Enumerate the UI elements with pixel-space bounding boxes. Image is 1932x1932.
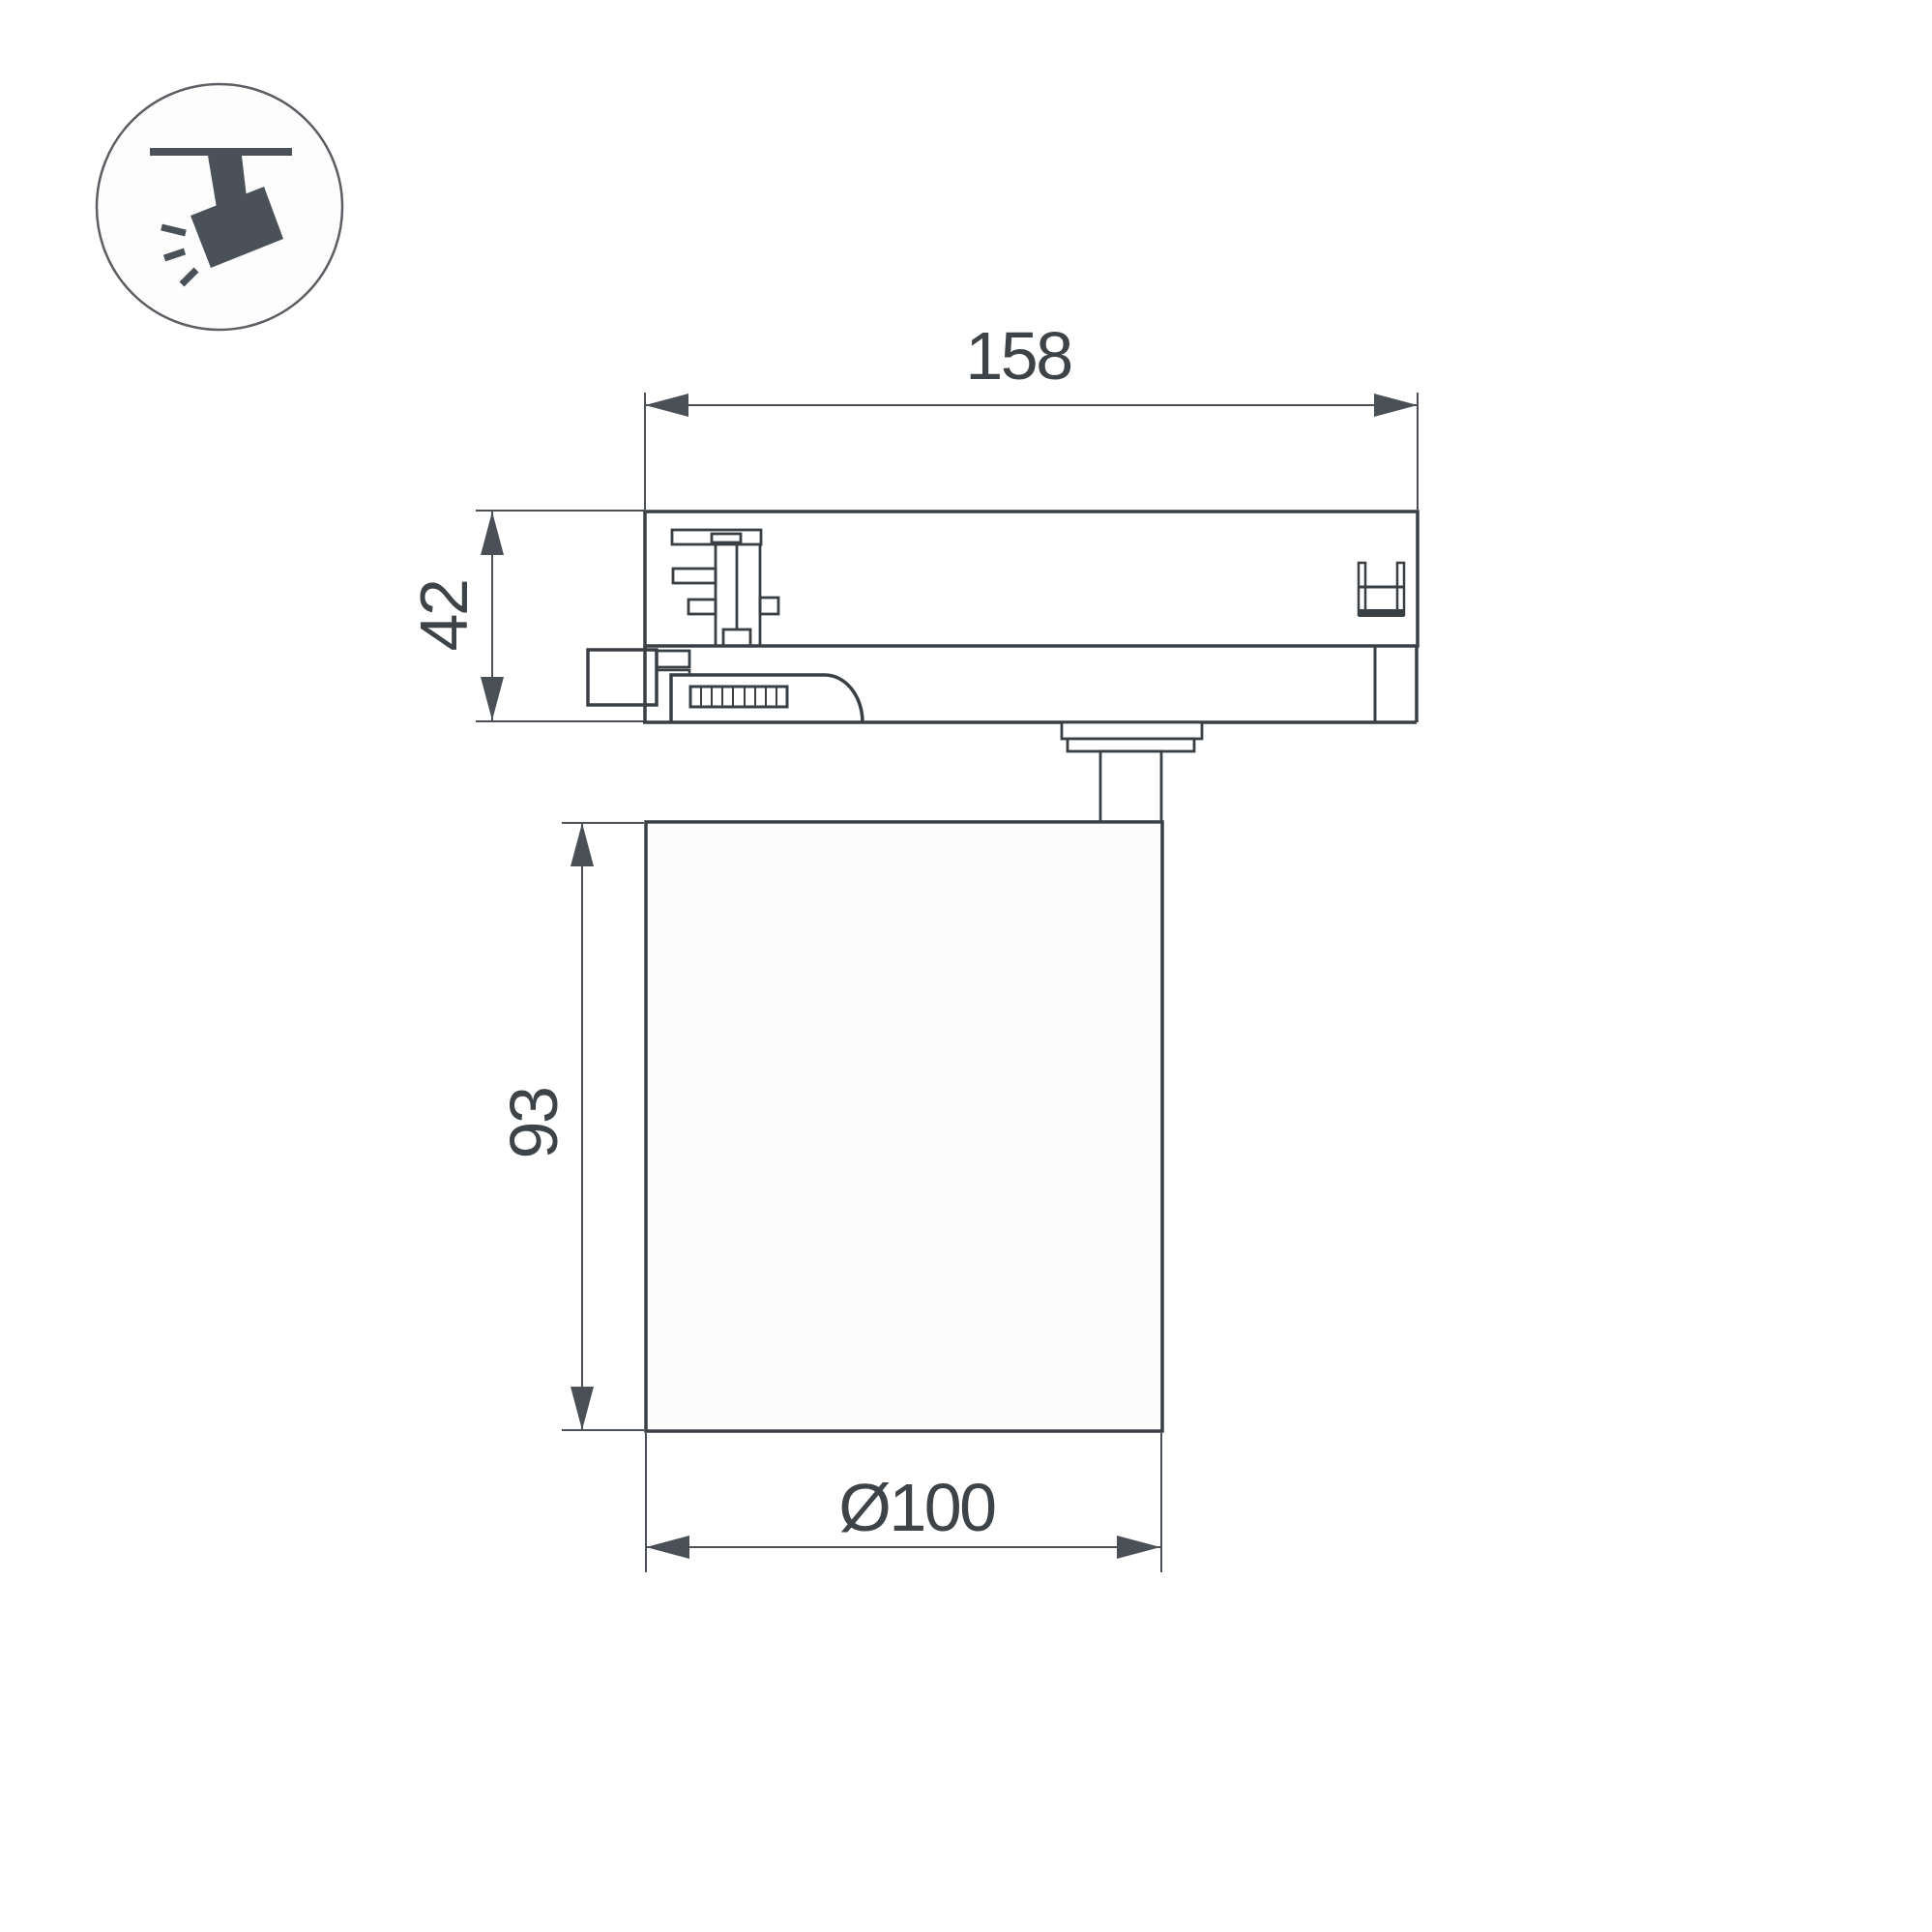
arrowhead-down	[571, 1387, 594, 1430]
arrowhead-left	[645, 394, 688, 417]
dimension-label-body-diameter: Ø100	[838, 1474, 994, 1541]
mount-plate-lower	[1068, 739, 1194, 751]
technical-drawing	[0, 0, 1932, 1932]
dimension-label-overall-length: 158	[965, 322, 1070, 390]
dimension-label-adapter-height: 42	[410, 581, 478, 652]
arrowhead-down	[481, 677, 504, 720]
mount-stem	[1100, 751, 1161, 822]
arrowhead-right	[1374, 394, 1418, 417]
arrowhead-left	[646, 1536, 689, 1559]
mount-plate-upper	[1062, 722, 1202, 739]
arrowhead-right	[1117, 1536, 1160, 1559]
lock-notch	[657, 651, 689, 667]
vent-grille	[690, 687, 787, 707]
arrowhead-up	[571, 823, 594, 866]
dimension-label-body-height: 93	[500, 1089, 568, 1159]
dimension-42	[476, 511, 644, 721]
dimension-158	[645, 393, 1418, 510]
arrowhead-up	[481, 512, 504, 555]
adapter-lower-body	[588, 646, 1417, 722]
grille-frame	[690, 687, 787, 707]
track-adapter	[588, 512, 1418, 722]
swivel-mount	[1062, 722, 1202, 822]
dimension-drawing-canvas: 158 42 93 Ø100	[0, 0, 1932, 1932]
dimension-93	[562, 823, 644, 1430]
lamp-body	[646, 822, 1162, 1431]
